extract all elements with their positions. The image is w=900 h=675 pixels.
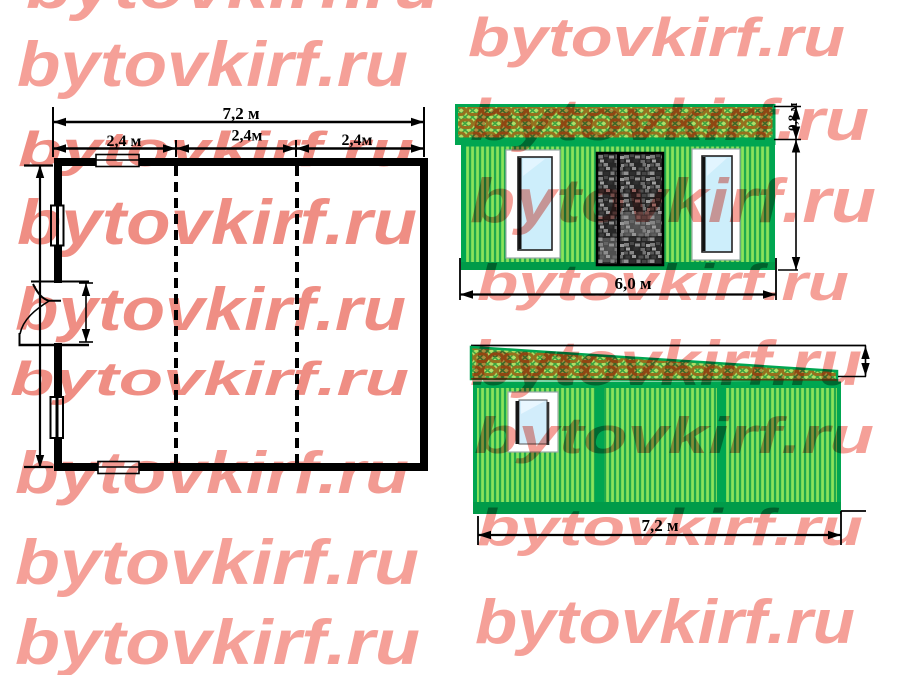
svg-text:bytovkirf.ru: bytovkirf.ru <box>477 254 849 311</box>
svg-text:bytovkirf.ru: bytovkirf.ru <box>15 440 409 506</box>
svg-text:bytovkirf.ru: bytovkirf.ru <box>470 88 869 153</box>
svg-text:bytovkirf.ru: bytovkirf.ru <box>474 407 874 464</box>
svg-text:bytovkirf.ru: bytovkirf.ru <box>477 499 863 557</box>
svg-text:bytovkirf.ru: bytovkirf.ru <box>15 276 406 343</box>
svg-text:bytovkirf.ru: bytovkirf.ru <box>468 6 845 68</box>
svg-text:7,2 м: 7,2 м <box>222 104 260 123</box>
svg-text:bytovkirf.ru: bytovkirf.ru <box>17 30 408 100</box>
svg-text:bytovkirf.ru: bytovkirf.ru <box>470 167 876 236</box>
svg-text:bytovkirf.ru: bytovkirf.ru <box>17 188 417 258</box>
svg-text:bytovkirf.ru: bytovkirf.ru <box>470 329 862 399</box>
svg-text:bytovkirf.ru: bytovkirf.ru <box>15 608 420 675</box>
svg-text:bytovkirf.ru: bytovkirf.ru <box>18 123 414 177</box>
svg-text:bytovkirf.ru: bytovkirf.ru <box>475 588 855 657</box>
svg-text:bytovkirf.ru: bytovkirf.ru <box>26 0 440 22</box>
svg-text:bytovkirf.ru: bytovkirf.ru <box>10 352 409 405</box>
svg-text:bytovkirf.ru: bytovkirf.ru <box>15 528 419 598</box>
